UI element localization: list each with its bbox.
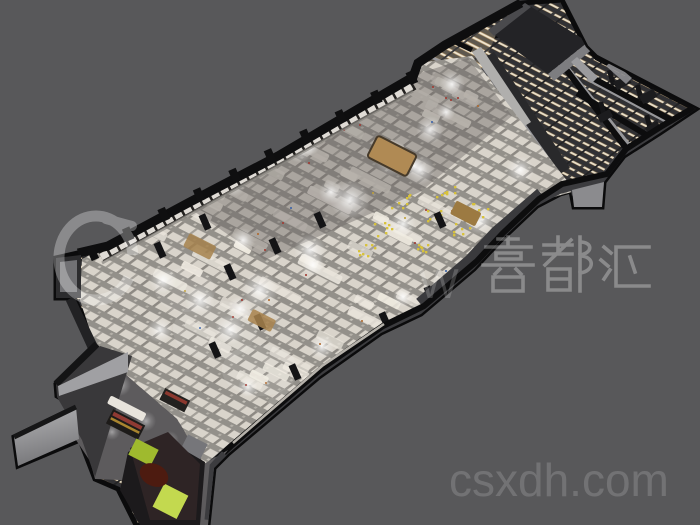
svg-text:W: W <box>419 260 459 307</box>
svg-text:csxdh.com: csxdh.com <box>449 454 669 506</box>
